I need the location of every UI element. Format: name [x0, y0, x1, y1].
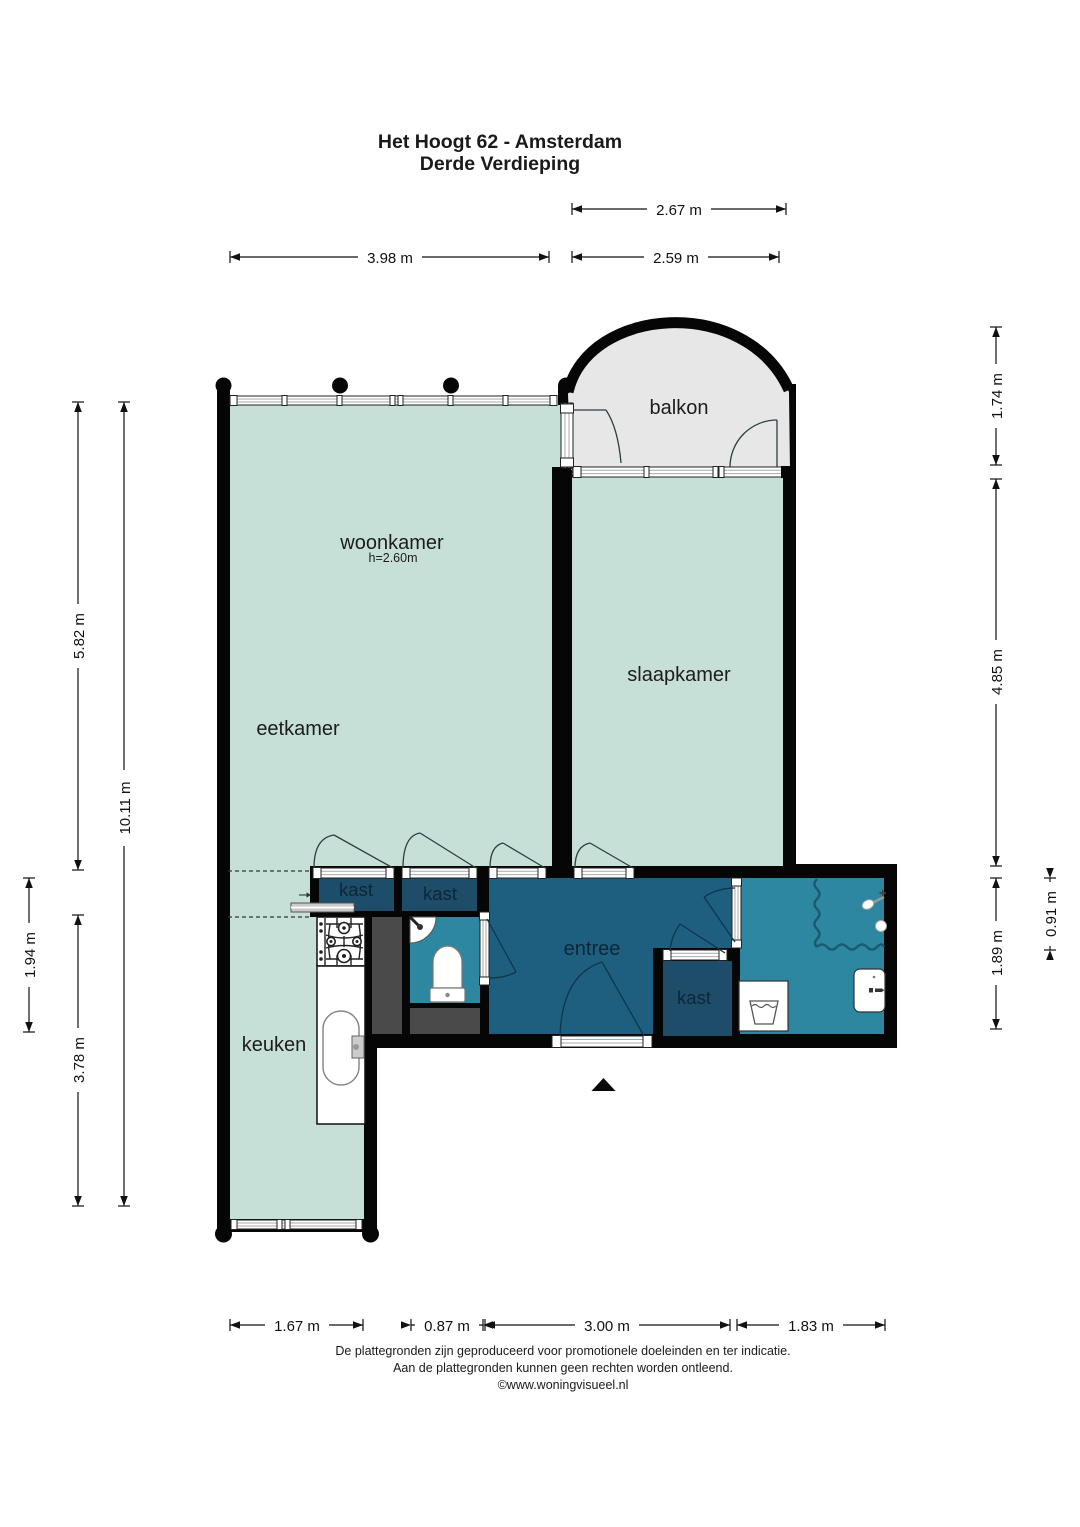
svg-text:0.91 m: 0.91 m [1043, 891, 1060, 937]
svg-text:1.89 m: 1.89 m [989, 930, 1006, 976]
svg-text:Het Hoogt 62 - Amsterdam: Het Hoogt 62 - Amsterdam [378, 131, 622, 153]
svg-text:kast: kast [677, 987, 711, 1008]
svg-text:entree: entree [564, 938, 621, 960]
svg-text:10.11 m: 10.11 m [117, 781, 134, 834]
svg-text:3.98 m: 3.98 m [367, 250, 413, 267]
svg-text:kast: kast [423, 883, 457, 904]
svg-text:balkon: balkon [650, 397, 709, 419]
svg-text:5.82 m: 5.82 m [71, 613, 88, 659]
svg-text:kast: kast [339, 879, 373, 900]
svg-text:2.59 m: 2.59 m [653, 250, 699, 267]
svg-text:3.78 m: 3.78 m [71, 1037, 88, 1083]
svg-text:h=2.60m: h=2.60m [369, 551, 418, 565]
svg-text:Derde Verdieping: Derde Verdieping [420, 153, 580, 175]
svg-text:1.67 m: 1.67 m [274, 1318, 320, 1335]
svg-text:De plattegronden zijn geproduc: De plattegronden zijn geproduceerd voor … [335, 1344, 790, 1358]
svg-text:©www.woningvisueel.nl: ©www.woningvisueel.nl [498, 1378, 629, 1392]
svg-text:3.00 m: 3.00 m [584, 1318, 630, 1335]
svg-text:slaapkamer: slaapkamer [627, 664, 731, 686]
svg-text:1.94 m: 1.94 m [22, 932, 39, 978]
svg-text:Aan de plattegronden kunnen ge: Aan de plattegronden kunnen geen rechten… [393, 1361, 733, 1375]
svg-text:keuken: keuken [242, 1034, 307, 1056]
svg-text:2.67 m: 2.67 m [656, 202, 702, 219]
svg-text:1.83 m: 1.83 m [788, 1318, 834, 1335]
svg-text:1.74 m: 1.74 m [989, 373, 1006, 419]
svg-text:eetkamer: eetkamer [256, 718, 340, 740]
svg-text:0.87 m: 0.87 m [424, 1318, 470, 1335]
svg-text:4.85 m: 4.85 m [989, 649, 1006, 695]
